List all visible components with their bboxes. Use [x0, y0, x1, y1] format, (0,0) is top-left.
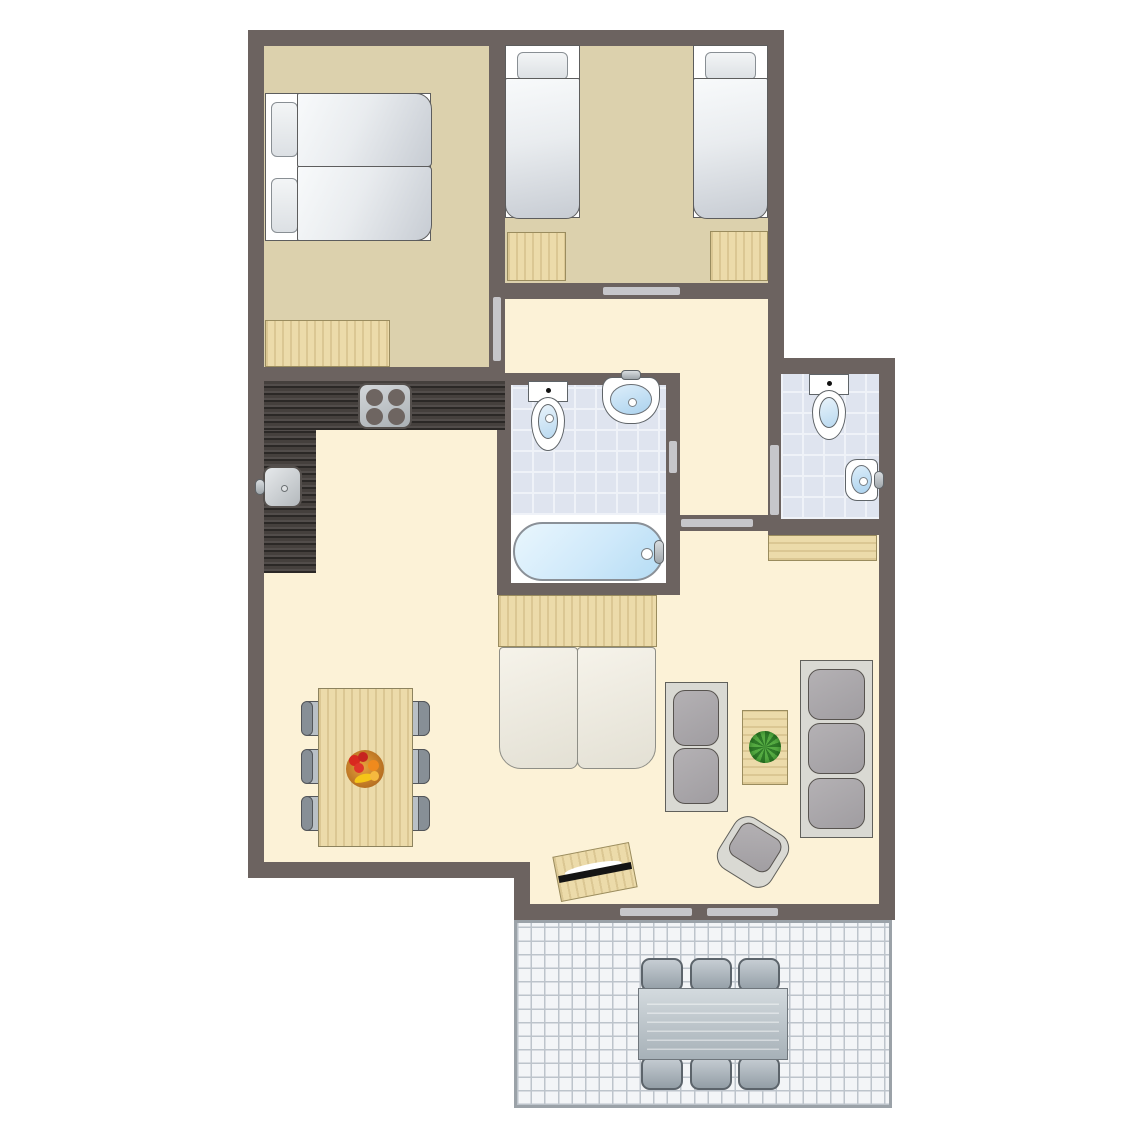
burner: [366, 408, 383, 425]
sofa-2-seat: [665, 682, 728, 812]
wc-sink-faucet: [874, 471, 884, 489]
toilet-bowl: [812, 390, 846, 440]
nightstand: [507, 232, 566, 281]
door-opening-toilet-room: [770, 445, 779, 515]
fruit-orange: [368, 760, 379, 771]
sofa-cushion: [673, 690, 719, 746]
pillow: [705, 52, 756, 80]
bathroom-toilet: [528, 381, 568, 451]
wardrobe: [265, 320, 390, 367]
fruit-apple: [358, 752, 368, 762]
toilet-room-wall: [768, 519, 879, 535]
toilet-bowl: [531, 397, 565, 451]
door-opening-terrace: [620, 908, 692, 916]
sofa-cushion: [808, 778, 865, 829]
washbasin-drain: [859, 477, 868, 486]
outdoor-chair: [738, 1056, 780, 1090]
fruit-apple: [354, 763, 364, 773]
toilet-drain: [545, 414, 554, 423]
duvet: [297, 166, 432, 241]
door-opening-bedroom-twin: [603, 287, 680, 295]
outdoor-chair: [690, 958, 732, 992]
toilet-bowl-inner: [819, 397, 839, 428]
single-bed: [693, 45, 768, 218]
pillow: [271, 102, 298, 157]
wall: [768, 30, 784, 374]
wall: [248, 30, 264, 878]
pillow: [517, 52, 568, 80]
flush-button: [546, 388, 551, 393]
bathroom-washbasin: [602, 377, 660, 424]
kitchen-sink: [263, 466, 302, 508]
burner: [388, 408, 405, 425]
plant: [749, 731, 781, 763]
kitchen-faucet: [255, 479, 265, 495]
burner: [366, 389, 383, 406]
door-opening-hallway: [681, 519, 753, 527]
pillow: [271, 178, 298, 233]
floor-plan: [0, 0, 1145, 1145]
bathroom-wall: [497, 583, 680, 595]
wall: [514, 904, 895, 920]
drain: [281, 485, 288, 492]
sofa-bed-cushion: [577, 647, 656, 769]
duvet: [505, 78, 580, 219]
door-opening-bathroom: [669, 441, 677, 473]
wall: [248, 367, 505, 381]
double-bed: [265, 93, 431, 241]
washbasin-drain: [628, 398, 637, 407]
nightstand: [710, 231, 768, 281]
sideboard: [768, 535, 877, 561]
burner: [388, 389, 405, 406]
bathtub-faucet: [654, 540, 664, 564]
sofa-3-seat: [800, 660, 873, 838]
outdoor-chair: [641, 1056, 683, 1090]
sofa-cushion: [808, 723, 865, 774]
sofa-bed-cushion: [499, 647, 578, 769]
door-opening-bedroom-double: [493, 297, 501, 361]
fruit-bowl: [346, 750, 384, 788]
sofa-cushion: [808, 669, 865, 720]
bathtub-drain: [641, 548, 653, 560]
duvet: [297, 93, 432, 167]
wall: [248, 30, 784, 46]
wc-toilet: [809, 374, 849, 440]
wall: [248, 862, 530, 878]
tv-cabinet: [498, 595, 657, 647]
outdoor-chair: [738, 958, 780, 992]
sofa-bed: [499, 647, 656, 769]
outdoor-chair: [690, 1056, 732, 1090]
outdoor-table: [638, 988, 788, 1060]
flush-button: [827, 381, 832, 386]
door-opening-terrace: [707, 908, 778, 916]
fruit-pear: [370, 771, 379, 781]
bathroom-sink-faucet: [621, 370, 641, 380]
toilet-room-wall: [768, 358, 895, 374]
bathtub: [513, 522, 664, 581]
stove: [358, 383, 412, 429]
outdoor-chair: [641, 958, 683, 992]
outdoor-table-slats: [647, 998, 779, 1050]
single-bed: [505, 45, 580, 218]
wall: [879, 358, 895, 920]
duvet: [693, 78, 768, 219]
sofa-cushion: [673, 748, 719, 804]
bathroom-wall: [666, 373, 680, 595]
